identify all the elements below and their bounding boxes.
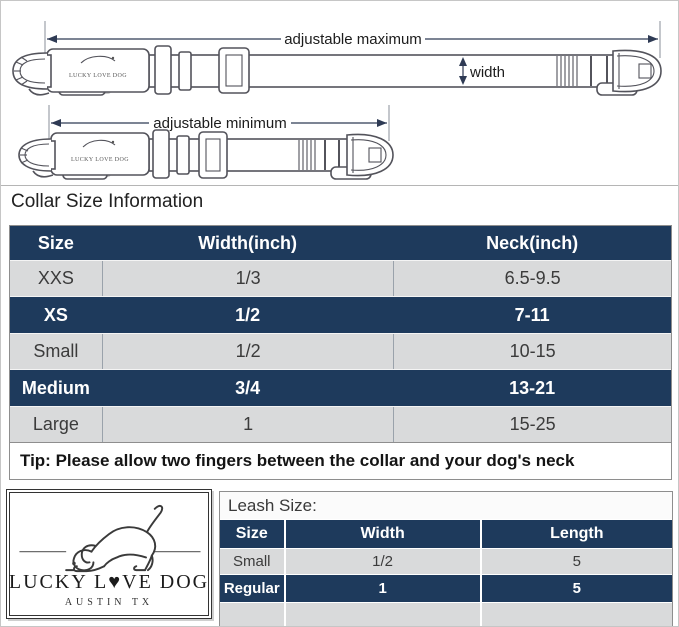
cell-neck: 6.5-9.5 <box>393 261 671 296</box>
collar-diagrams: adjustable maximum <box>1 1 678 184</box>
table-header-row: Size Width(inch) Neck(inch) <box>10 226 671 260</box>
leash-size-heading: Leash Size: <box>220 492 672 519</box>
adjustable-minimum-label: adjustable minimum <box>153 115 286 132</box>
cell-width: 1/2 <box>102 334 394 369</box>
product-size-infographic: adjustable maximum <box>0 0 679 627</box>
header-cell-width: Width(inch) <box>102 226 394 260</box>
header-cell-size: Size <box>10 226 102 260</box>
table-row: Small 1/2 5 <box>220 548 672 574</box>
bowing-dog-illustration <box>11 501 207 575</box>
header-cell-neck: Neck(inch) <box>393 226 671 260</box>
width-label: width <box>469 64 505 81</box>
table-row: Medium 3/4 13-21 <box>10 369 671 406</box>
header-cell-length: Length <box>482 520 672 548</box>
brand-logo-box: LUCKY L♥VE DOG AUSTIN TX <box>6 489 212 619</box>
cell-size: Small <box>220 549 286 574</box>
table-row: Large 1 15-25 <box>10 406 671 442</box>
cell-width: 1/2 <box>286 549 482 574</box>
buckle-brand-label: LUCKY LOVE DOG <box>71 157 129 163</box>
cell-size: XXS <box>10 261 102 296</box>
table-row: XXS 1/3 6.5-9.5 <box>10 260 671 296</box>
section-divider <box>1 185 679 186</box>
cell-length: 5 <box>482 549 672 574</box>
cell-neck: 15-25 <box>393 407 671 442</box>
cell-width: 1 <box>286 575 482 602</box>
brand-location: AUSTIN TX <box>65 597 153 608</box>
table-row: Small 1/2 10-15 <box>10 333 671 369</box>
fit-tip-note: Tip: Please allow two fingers between th… <box>10 442 671 479</box>
collar-buckle: LUCKY LOVE DOG <box>47 49 149 95</box>
table-row: XS 1/2 7-11 <box>10 296 671 333</box>
brand-logo-inner-frame: LUCKY L♥VE DOG AUSTIN TX <box>9 492 209 616</box>
brand-name: LUCKY L♥VE DOG <box>9 571 209 594</box>
cell-neck: 7-11 <box>393 297 671 333</box>
cell-size: XS <box>10 297 102 333</box>
cell-neck: 10-15 <box>393 334 671 369</box>
cell-neck: 13-21 <box>393 370 671 406</box>
cell-length: 5 <box>482 575 672 602</box>
cell-width: 1/3 <box>102 261 394 296</box>
cell-size: Regular <box>220 575 286 602</box>
cell-width: 3/4 <box>102 370 394 406</box>
collar-left-dring <box>19 139 55 177</box>
collar-buckle: LUCKY LOVE DOG <box>51 133 149 179</box>
cell-width: 1 <box>102 407 394 442</box>
cell-width: 1/2 <box>102 297 394 333</box>
collar-size-heading: Collar Size Information <box>11 191 203 213</box>
header-cell-size: Size <box>220 520 286 548</box>
cell-size: Small <box>10 334 102 369</box>
table-row: Regular 1 5 <box>220 574 672 602</box>
cell-size: Large <box>10 407 102 442</box>
header-cell-width: Width <box>286 520 482 548</box>
buckle-brand-label: LUCKY LOVE DOG <box>69 73 127 79</box>
collar-left-dring <box>13 53 51 95</box>
collar-drawing-minimum: LUCKY LOVE DOG <box>19 130 393 179</box>
cell-size: Medium <box>10 370 102 406</box>
collar-size-table: Size Width(inch) Neck(inch) XXS 1/3 6.5-… <box>9 225 672 480</box>
table-row-empty <box>220 602 672 626</box>
collar-drawing-maximum: LUCKY LOVE DOG <box>13 46 661 95</box>
leash-size-table: Leash Size: Size Width Length Small 1/2 … <box>219 491 673 627</box>
adjustable-maximum-label: adjustable maximum <box>284 31 422 48</box>
table-header-row: Size Width Length <box>220 519 672 548</box>
